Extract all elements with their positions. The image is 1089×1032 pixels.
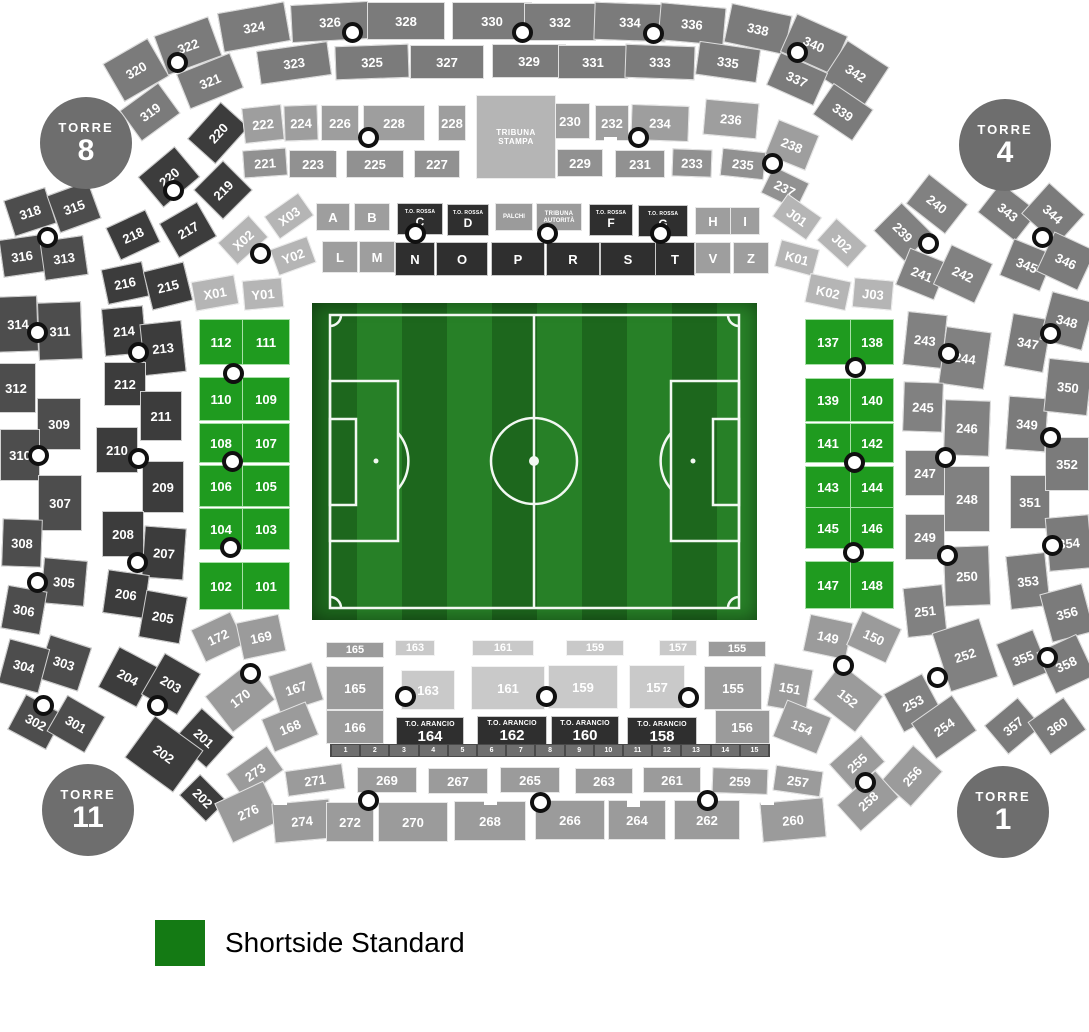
section-265: 265 [500, 767, 560, 793]
section-161: 161 [472, 640, 534, 656]
row-number-5: 5 [449, 745, 476, 756]
section-157: 157 [629, 665, 685, 709]
section-a: A [316, 203, 350, 231]
seat-view-marker[interactable] [918, 233, 939, 254]
section-148[interactable]: 148 [850, 561, 894, 609]
row-number-6: 6 [478, 745, 505, 756]
section-323: 323 [256, 41, 332, 85]
seat-view-marker[interactable] [762, 153, 783, 174]
row-number-9: 9 [566, 745, 593, 756]
seat-view-marker[interactable] [37, 227, 58, 248]
section-111[interactable]: 111 [242, 319, 290, 365]
seat-view-marker[interactable] [1037, 647, 1058, 668]
section-232: 232 [595, 105, 629, 141]
section-164: T.O. ARANCIO164 [396, 717, 464, 747]
seat-view-marker[interactable] [530, 792, 551, 813]
section-248: 248 [944, 466, 990, 532]
section-155: 155 [708, 641, 766, 657]
section-236: 236 [703, 99, 760, 140]
tower-11: TORRE11 [42, 764, 134, 856]
seat-view-marker[interactable] [27, 322, 48, 343]
section-304: 304 [0, 638, 50, 693]
section-149: 149 [803, 614, 854, 660]
gate-marker [627, 797, 640, 807]
section-m: M [359, 241, 395, 273]
seat-view-marker[interactable] [537, 223, 558, 244]
section-218: 218 [105, 209, 160, 260]
section-112[interactable]: 112 [199, 319, 243, 365]
row-number-12: 12 [653, 745, 680, 756]
section-x01: X01 [191, 274, 240, 311]
tower-1: TORRE1 [957, 766, 1049, 858]
section-169: 169 [236, 614, 287, 660]
seat-view-marker[interactable] [845, 357, 866, 378]
seat-view-marker[interactable] [787, 42, 808, 63]
section-b: B [354, 203, 390, 231]
section-315: 315 [46, 181, 101, 234]
section-172: 172 [190, 611, 245, 662]
section-137[interactable]: 137 [805, 319, 851, 365]
row-number-8: 8 [536, 745, 563, 756]
tower-number: 4 [997, 137, 1014, 169]
gate-marker [761, 795, 774, 805]
tower-name: TORRE [977, 122, 1032, 137]
seat-view-marker[interactable] [844, 452, 865, 473]
section-107[interactable]: 107 [242, 423, 290, 463]
section-231: 231 [615, 150, 665, 178]
section-350: 350 [1043, 358, 1089, 416]
section-207: 207 [141, 526, 187, 581]
football-pitch [312, 303, 757, 620]
seat-view-marker[interactable] [128, 448, 149, 469]
row-number-15: 15 [741, 745, 768, 756]
seat-view-marker[interactable] [1040, 427, 1061, 448]
section-k01: K01 [774, 239, 820, 276]
section-z: Z [733, 242, 769, 274]
seat-view-marker[interactable] [678, 687, 699, 708]
section-i: I [730, 207, 760, 235]
section-235: 235 [720, 148, 767, 180]
seat-view-marker[interactable] [28, 445, 49, 466]
section-263: 263 [575, 768, 633, 794]
seat-view-marker[interactable] [223, 363, 244, 384]
seat-view-marker[interactable] [220, 537, 241, 558]
row-number-7: 7 [507, 745, 534, 756]
section-360: 360 [1028, 697, 1087, 755]
row-number-2: 2 [361, 745, 388, 756]
seat-view-marker[interactable] [935, 447, 956, 468]
seat-view-marker[interactable] [342, 22, 363, 43]
seat-view-marker[interactable] [938, 343, 959, 364]
section-163: 163 [395, 640, 435, 656]
seat-view-marker[interactable] [1032, 227, 1053, 248]
section-211: 211 [140, 391, 182, 441]
section-222: 222 [241, 104, 285, 144]
section-101[interactable]: 101 [242, 562, 290, 610]
section-216: 216 [101, 261, 150, 305]
section-324: 324 [217, 1, 291, 52]
section-166: 166 [326, 710, 384, 744]
section-329: 329 [492, 44, 566, 78]
section-332: 332 [524, 3, 596, 41]
section-v: V [695, 242, 731, 274]
tower-name: TORRE [58, 120, 113, 135]
seat-view-marker[interactable] [1042, 535, 1063, 556]
section-palchi: PALCHI [495, 203, 533, 231]
tower-number: 11 [72, 802, 104, 834]
seat-view-marker[interactable] [937, 545, 958, 566]
seat-view-marker[interactable] [628, 127, 649, 148]
section-155: 155 [704, 666, 762, 710]
row-number-1: 1 [332, 745, 359, 756]
section-267: 267 [428, 768, 488, 794]
section-259: 259 [712, 767, 769, 795]
section-356: 356 [1039, 583, 1089, 643]
section-333: 333 [624, 44, 695, 80]
section-269: 269 [357, 767, 417, 793]
legend-label: Shortside Standard [225, 927, 465, 959]
section-261: 261 [643, 767, 701, 793]
section-103[interactable]: 103 [242, 508, 290, 550]
section-205: 205 [138, 590, 188, 645]
row-number-13: 13 [682, 745, 709, 756]
section-y01: Y01 [242, 277, 284, 310]
row-number-4: 4 [420, 745, 447, 756]
legend: Shortside Standard [155, 920, 465, 966]
seat-view-marker[interactable] [405, 223, 426, 244]
seat-view-marker[interactable] [643, 23, 664, 44]
section-160: T.O. ARANCIO160 [551, 716, 619, 746]
section-s: S [600, 242, 656, 276]
seat-view-marker[interactable] [697, 790, 718, 811]
seat-view-marker[interactable] [358, 790, 379, 811]
section-229: 229 [557, 149, 603, 177]
row-number-10: 10 [595, 745, 622, 756]
seat-view-marker[interactable] [843, 542, 864, 563]
gate-marker [484, 795, 497, 805]
section-r: R [546, 242, 600, 276]
section-l: L [322, 241, 358, 273]
gate-marker [604, 137, 617, 147]
section-233: 233 [672, 148, 713, 177]
section-j03: J03 [852, 277, 894, 310]
section-106[interactable]: 106 [199, 465, 243, 507]
gate-marker [334, 141, 347, 151]
section-220: 220 [187, 102, 249, 165]
tower-4: TORRE4 [959, 99, 1051, 191]
section-k02: K02 [804, 273, 851, 311]
section-328: 328 [367, 2, 445, 40]
section-230: 230 [550, 103, 590, 139]
section-159: 159 [548, 665, 618, 709]
seat-view-marker[interactable] [536, 686, 557, 707]
section-102[interactable]: 102 [199, 562, 243, 610]
section-308: 308 [1, 518, 43, 567]
section-325: 325 [334, 44, 409, 81]
section-309: 309 [37, 398, 81, 450]
section-268: 268 [454, 801, 526, 841]
section-242: 242 [933, 244, 993, 303]
seat-view-marker[interactable] [833, 655, 854, 676]
seat-view-marker[interactable] [163, 180, 184, 201]
section-271: 271 [284, 763, 345, 797]
section-j02: J02 [816, 218, 867, 268]
tower-8: TORRE8 [40, 97, 132, 189]
section-stampa: TRIBUNASTAMPA [476, 95, 556, 179]
section-105[interactable]: 105 [242, 465, 290, 507]
section-307: 307 [38, 475, 82, 531]
section-n: N [395, 242, 435, 276]
section-161: 161 [471, 666, 545, 710]
section-225: 225 [346, 150, 404, 178]
section-226: 226 [321, 105, 359, 141]
section-270: 270 [378, 802, 448, 842]
section-217: 217 [159, 202, 217, 259]
section-257: 257 [772, 765, 823, 797]
section-t: T [655, 242, 695, 276]
section-208: 208 [102, 511, 144, 557]
seat-view-marker[interactable] [147, 695, 168, 716]
section-336: 336 [657, 2, 726, 46]
section-228: 228 [438, 105, 466, 141]
tower-name: TORRE [60, 787, 115, 802]
seat-view-marker[interactable] [1040, 323, 1061, 344]
section-139[interactable]: 139 [805, 378, 851, 422]
section-209: 209 [142, 461, 184, 513]
seat-view-marker[interactable] [358, 127, 379, 148]
section-312: 312 [0, 363, 36, 413]
row-number-3: 3 [390, 745, 417, 756]
seat-view-marker[interactable] [240, 663, 261, 684]
section-157: 157 [659, 640, 697, 656]
section-147[interactable]: 147 [805, 561, 851, 609]
section-d: T.O. ROSSAD [447, 204, 489, 236]
seat-view-marker[interactable] [650, 223, 671, 244]
section-227: 227 [414, 150, 460, 178]
section-223: 223 [289, 150, 337, 178]
section-165: 165 [326, 642, 384, 658]
seat-view-marker[interactable] [855, 772, 876, 793]
section-162: T.O. ARANCIO162 [477, 716, 547, 746]
section-301: 301 [46, 695, 105, 753]
seat-view-marker[interactable] [127, 552, 148, 573]
section-150: 150 [846, 610, 902, 663]
seat-view-marker[interactable] [250, 243, 271, 264]
section-y02: Y02 [269, 236, 316, 276]
section-245: 245 [902, 381, 944, 432]
seat-view-marker[interactable] [33, 695, 54, 716]
section-o: O [436, 242, 488, 276]
section-335: 335 [695, 41, 761, 83]
section-f: T.O. ROSSAF [589, 204, 633, 236]
gate-marker [274, 795, 287, 805]
seat-view-marker[interactable] [222, 451, 243, 472]
section-327: 327 [410, 45, 484, 79]
section-143[interactable]: 143 [805, 466, 851, 508]
section-156: 156 [715, 710, 770, 744]
section-159: 159 [566, 640, 624, 656]
seat-view-marker[interactable] [512, 22, 533, 43]
section-331: 331 [558, 45, 628, 79]
section-145[interactable]: 145 [805, 507, 851, 549]
seat-view-marker[interactable] [128, 342, 149, 363]
row-number-strip: 123456789101112131415 [330, 744, 770, 757]
section-x03: X03 [264, 192, 314, 239]
section-165: 165 [326, 666, 384, 710]
tower-name: TORRE [975, 789, 1030, 804]
section-h: H [695, 207, 731, 235]
section-168: 168 [261, 701, 319, 752]
row-number-11: 11 [624, 745, 651, 756]
legend-swatch-shortside-standard [155, 920, 205, 966]
tower-number: 8 [78, 135, 95, 167]
section-109[interactable]: 109 [242, 377, 290, 421]
section-140[interactable]: 140 [850, 378, 894, 422]
section-158: T.O. ARANCIO158 [627, 717, 697, 747]
section-p: P [491, 242, 545, 276]
gate-marker [707, 137, 720, 147]
seat-view-marker[interactable] [395, 686, 416, 707]
section-274: 274 [271, 799, 332, 844]
section-221: 221 [242, 147, 288, 178]
pitch-lines [312, 303, 757, 620]
row-number-14: 14 [712, 745, 739, 756]
seat-view-marker[interactable] [27, 572, 48, 593]
stadium-seat-map: 3203223243263283303323343363383403423193… [0, 0, 1089, 1032]
seat-view-marker[interactable] [927, 667, 948, 688]
section-215: 215 [143, 262, 193, 311]
tower-number: 1 [995, 804, 1012, 836]
section-224: 224 [283, 104, 318, 141]
seat-view-marker[interactable] [167, 52, 188, 73]
